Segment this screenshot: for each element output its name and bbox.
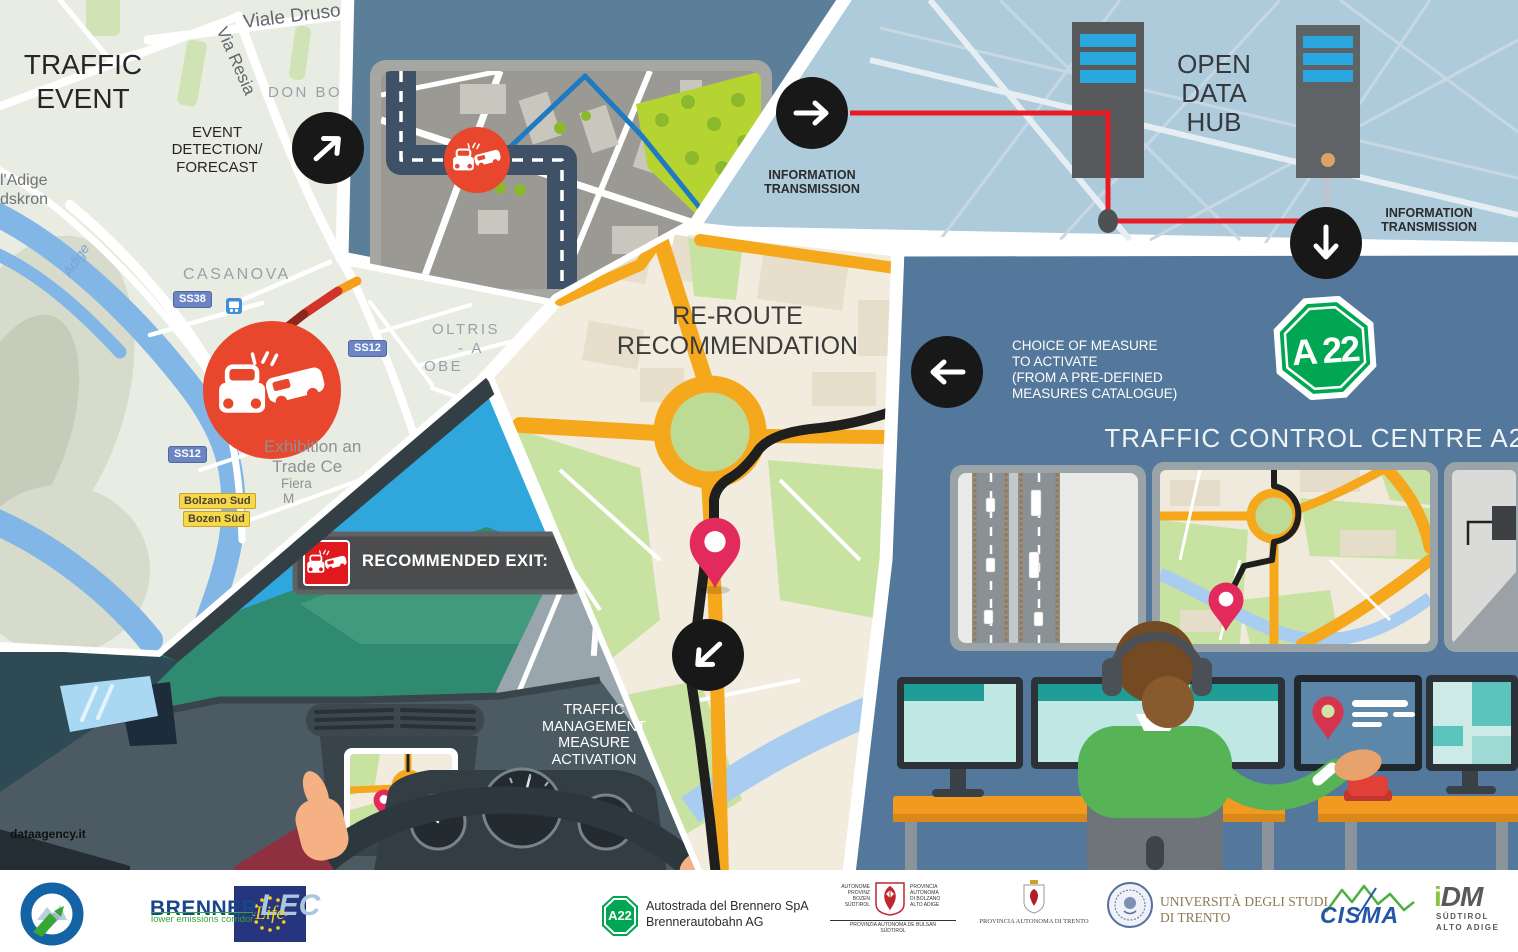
choice-line-4: MEASURES CATALOGUE) [1012, 386, 1202, 402]
unitn-line1: UNIVERSITÀ DEGLI STUDI [1160, 894, 1328, 910]
district-oltrisarco-2: - A [458, 340, 484, 357]
event-detection-label: EVENT DETECTION/ FORECAST [158, 124, 276, 176]
a22-company-line1: Autostrada del Brennero SpA [646, 899, 809, 914]
traffic-event-label: TRAFFIC EVENT [18, 48, 148, 115]
bolzano-province-logo: AUTONOME PROVINZ BOZEN SÜDTIROL PROVINCI… [830, 882, 956, 942]
poi-exhibition-3: Fiera [281, 476, 312, 492]
open-data-hub-label: OPEN DATA HUB [1168, 50, 1260, 137]
bz-right-4: ALTO ADIGE [910, 902, 956, 908]
unitn-line2: DI TRENTO [1160, 910, 1328, 926]
life-wordmark: Life [234, 903, 306, 926]
district-don-bosco: DON BO [268, 84, 342, 101]
idm-line2: ALTO ADIGE [1436, 923, 1499, 934]
trento-shield-icon [1022, 880, 1046, 914]
district-oltrisarco-3: OBE [424, 358, 463, 375]
district-casanova: CASANOVA [183, 266, 291, 284]
a22-footer-sign-text: A22 [600, 908, 640, 924]
label-dskron: dskron [0, 191, 48, 209]
control-centre-title: TRAFFIC CONTROL CENTRE A22 [1102, 424, 1518, 454]
unitn-seal-icon [1106, 881, 1154, 929]
wall-screen-highway [950, 465, 1146, 651]
bz-left-4: SÜDTIROL [830, 902, 870, 908]
exit-badge-bolzano-sud: Bolzano Sud [179, 493, 256, 509]
poi-exhibition-1: Exhibition an [264, 437, 361, 457]
connection-node [1098, 209, 1118, 233]
bz-bottom-2: SÜDTIROL [830, 928, 956, 934]
idm-logo: iDM SÜDTIROL ALTO ADIGE [1434, 880, 1514, 940]
choice-of-measure-label: CHOICE OF MEASURE TO ACTIVATE (FROM A PR… [1012, 338, 1202, 402]
trento-province-label: PROVINCIA AUTONOMA DI TRENTO [974, 918, 1094, 926]
arrow-down-left-icon [672, 619, 744, 691]
poi-exhibition-2: Trade Ce [272, 457, 342, 477]
server-icon-2 [1296, 25, 1360, 178]
arrow-left-icon [911, 336, 983, 408]
a22-sign-text: A 22 [1283, 327, 1368, 374]
road-badge-ss12-b: SS12 [168, 446, 207, 463]
cisma-wordmark: CISMA [1320, 902, 1399, 930]
infographic: TRAFFIC EVENT EVENT DETECTION/ FORECAST … [0, 0, 1518, 952]
idm-i: i [1434, 881, 1441, 912]
cisma-logo: CISMA [1320, 884, 1420, 936]
arrow-ne-icon [292, 112, 364, 184]
credit-label: dataagency.it [10, 828, 86, 842]
footer-logos: BRENNERLEC lower emissions corridor Life… [0, 870, 1518, 952]
road-badge-ss12-a: SS12 [348, 340, 387, 357]
arrow-down-icon [1290, 207, 1362, 279]
poi-exhibition-4: M [283, 491, 294, 507]
vms-text: RECOMMENDED EXIT: [362, 552, 548, 571]
arrow-right-icon [776, 77, 848, 149]
label-adige-left: l'Adige [0, 172, 48, 190]
traffic-management-label: TRAFFIC MANAGEMENT MEASURE ACTIVATION [532, 702, 656, 769]
choice-line-3: (FROM A PRE-DEFINED [1012, 370, 1202, 386]
a22-company-line2: Brennerautobahn AG [646, 915, 763, 930]
re-route-label: RE-ROUTE RECOMMENDATION [615, 302, 860, 361]
wall-screen-camera [1444, 462, 1518, 652]
exit-badge-bozen-sud: Bozen Süd [183, 511, 250, 527]
bolzano-shield-icon [875, 882, 905, 916]
bus-stop-icon [226, 298, 242, 314]
brennerlec-logo-icon [20, 882, 84, 946]
district-oltrisarco-1: OLTRIS [432, 321, 500, 338]
choice-line-2: TO ACTIVATE [1012, 354, 1202, 370]
dashboard-vents [306, 704, 484, 736]
information-transmission-1-label: INFORMATION TRANSMISSION [757, 168, 867, 197]
idm-line1: SÜDTIROL [1436, 912, 1499, 923]
road-badge-ss38: SS38 [173, 291, 212, 308]
information-transmission-2-label: INFORMATION TRANSMISSION [1376, 206, 1482, 235]
wall-screen-map [1152, 462, 1438, 652]
choice-line-1: CHOICE OF MEASURE [1012, 338, 1202, 354]
crash-inset-icon [444, 127, 510, 193]
idm-dm: DM [1441, 881, 1483, 912]
